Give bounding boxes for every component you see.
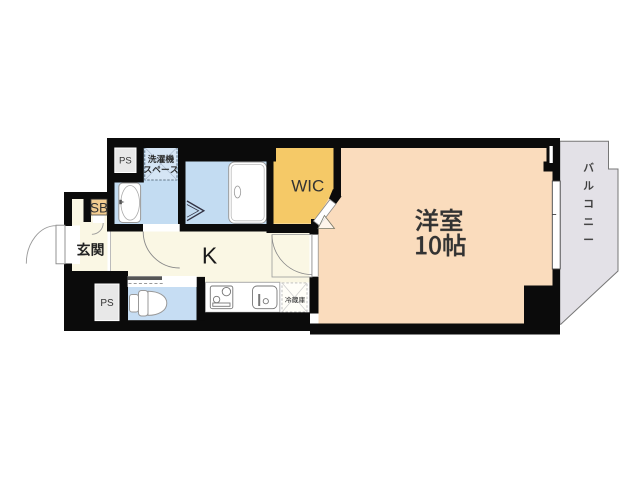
svg-text:PS: PS	[119, 156, 132, 167]
svg-text:WIC: WIC	[291, 176, 324, 195]
svg-text:PS: PS	[100, 298, 114, 309]
svg-text:SB: SB	[90, 201, 108, 216]
svg-text:K: K	[202, 242, 218, 268]
